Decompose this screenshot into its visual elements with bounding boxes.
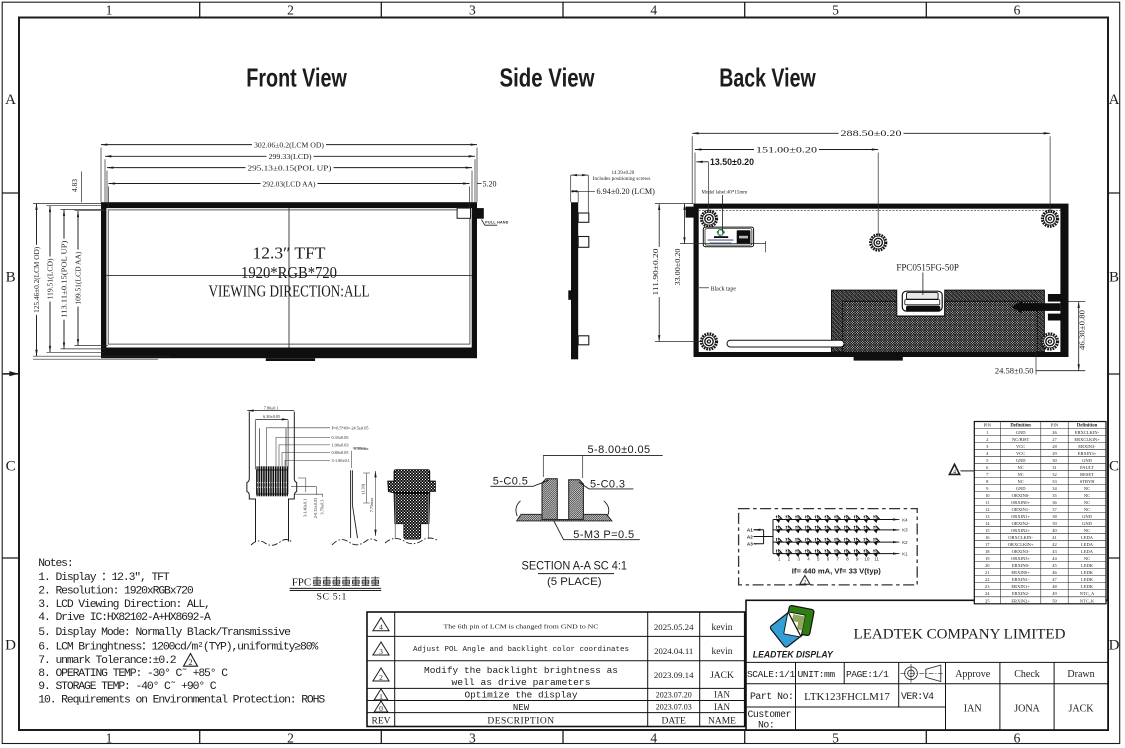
- svg-text:SECTION A-A SC 4:1: SECTION A-A SC 4:1: [522, 561, 628, 573]
- svg-text:Drawn: Drawn: [1067, 669, 1094, 680]
- svg-text:2: 2: [287, 730, 294, 745]
- svg-text:31: 31: [1052, 465, 1057, 470]
- svg-text:B: B: [6, 270, 16, 286]
- svg-text:1: 1: [986, 430, 988, 435]
- svg-text:A3: A3: [747, 542, 753, 547]
- svg-text:LTK123FHCLM17: LTK123FHCLM17: [804, 691, 890, 703]
- svg-text:NC: NC: [1017, 465, 1023, 470]
- svg-text:3: 3: [469, 730, 476, 745]
- svg-text:20: 20: [985, 563, 990, 568]
- svg-text:21: 21: [985, 570, 990, 575]
- svg-text:ERXIN0-: ERXIN0-: [1012, 563, 1030, 568]
- svg-text:6. LCM Bringhtness：1200cd/m²(T: 6. LCM Bringhtness：1200cd/m²(TYP),unifor…: [38, 642, 318, 654]
- svg-text:19: 19: [985, 556, 990, 561]
- svg-text:292.03(LCD AA): 292.03(LCD AA): [263, 179, 316, 188]
- svg-text:0.80±0.05: 0.80±0.05: [332, 450, 349, 455]
- svg-text:5: 5: [832, 730, 839, 745]
- svg-text:LEDK: LEDK: [1081, 584, 1094, 589]
- svg-text:6.30±0.05: 6.30±0.05: [263, 414, 280, 419]
- svg-text:(1.30): (1.30): [360, 483, 365, 494]
- svg-text:GND: GND: [1082, 458, 1092, 463]
- svg-text:D: D: [1109, 638, 1120, 654]
- svg-text:(5 PLACE): (5 PLACE): [547, 576, 602, 588]
- svg-text:2-0.35±0.03: 2-0.35±0.03: [313, 498, 318, 518]
- svg-text:30: 30: [1052, 458, 1057, 463]
- svg-text:5: 5: [832, 2, 839, 17]
- svg-text:2: 2: [188, 657, 192, 667]
- svg-text:15: 15: [985, 528, 990, 533]
- svg-text:2024.04.11: 2024.04.11: [654, 646, 693, 656]
- svg-text:Notes:: Notes:: [38, 558, 72, 570]
- svg-text:NC: NC: [1017, 479, 1023, 484]
- svg-text:ERXIN3-: ERXIN3-: [1078, 444, 1096, 449]
- svg-text:GND: GND: [1016, 486, 1026, 491]
- svg-text:32: 32: [1052, 472, 1057, 477]
- svg-text:NC: NC: [1084, 507, 1090, 512]
- svg-text:FPC: FPC: [292, 577, 312, 589]
- svg-text:JONA: JONA: [1014, 704, 1040, 715]
- svg-text:well as drive parameters: well as drive parameters: [452, 678, 591, 688]
- svg-text:A: A: [1109, 92, 1120, 108]
- svg-text:6: 6: [1014, 730, 1021, 745]
- svg-text:43: 43: [1052, 549, 1057, 554]
- svg-text:2023.09.14: 2023.09.14: [654, 670, 694, 680]
- svg-text:NC: NC: [1084, 556, 1090, 561]
- svg-text:GND: GND: [1082, 514, 1092, 519]
- svg-text:NC: NC: [1084, 528, 1090, 533]
- svg-text:ORXIN3-: ORXIN3-: [1012, 549, 1030, 554]
- svg-text:ERXCLKIN-: ERXCLKIN-: [1075, 430, 1100, 435]
- svg-text:45: 45: [1052, 563, 1057, 568]
- svg-text:9. STORAGE TEMP: -40° C˜ +90°: 9. STORAGE TEMP: -40° C˜ +90° C: [38, 681, 216, 693]
- svg-text:41: 41: [1052, 535, 1057, 540]
- svg-text:C: C: [6, 458, 16, 474]
- svg-text:302.06±0.2(LCM OD): 302.06±0.2(LCM OD): [254, 141, 324, 150]
- svg-text:0.35±0.05: 0.35±0.05: [332, 435, 349, 440]
- svg-text:ERXIN0+: ERXIN0+: [1011, 570, 1030, 575]
- svg-text:1: 1: [379, 692, 383, 701]
- svg-text:VCC: VCC: [1016, 451, 1025, 456]
- svg-text:PIN: PIN: [984, 423, 992, 428]
- svg-text:11: 11: [985, 500, 989, 505]
- svg-text:VIEWING DIRECTION:ALL: VIEWING DIRECTION:ALL: [209, 281, 370, 300]
- svg-text:2: 2: [986, 437, 988, 442]
- svg-text:NAME: NAME: [708, 716, 736, 726]
- svg-text:A: A: [5, 92, 16, 108]
- svg-text:A1: A1: [747, 528, 753, 533]
- svg-text:4. Drive IC:HX82102-A+HX8692-A: 4. Drive IC:HX82102-A+HX8692-A: [38, 612, 211, 624]
- svg-text:1.00±0.03: 1.00±0.03: [332, 443, 349, 448]
- svg-text:K1: K1: [902, 551, 908, 556]
- svg-text:299.33(LCD): 299.33(LCD): [269, 152, 312, 161]
- svg-text:295.13±0.15(POL UP): 295.13±0.15(POL UP): [248, 164, 333, 173]
- svg-text:28: 28: [1052, 444, 1057, 449]
- svg-text:ERXIN3+: ERXIN3+: [1078, 451, 1097, 456]
- svg-text:IAN: IAN: [714, 702, 730, 712]
- svg-text:SCALE:1/1: SCALE:1/1: [747, 669, 795, 680]
- svg-text:NC: NC: [1017, 472, 1023, 477]
- svg-text:Adjust POL Angle and backlight: Adjust POL Angle and backlight color coo…: [413, 646, 629, 654]
- svg-text:LEDK: LEDK: [1081, 563, 1094, 568]
- svg-text:3-1.00±0.1: 3-1.00±0.1: [332, 458, 350, 463]
- svg-text:Side View: Side View: [500, 63, 596, 93]
- svg-text:10: 10: [985, 493, 990, 498]
- svg-text:17: 17: [985, 542, 990, 547]
- svg-text:40: 40: [1052, 528, 1057, 533]
- svg-text:5-8.00±0.05: 5-8.00±0.05: [588, 444, 651, 456]
- svg-text:8. OPERATING TEMP: -30° C˜ +85: 8. OPERATING TEMP: -30° C˜ +85° C: [38, 668, 228, 680]
- svg-text:4.83: 4.83: [70, 179, 79, 192]
- svg-text:4: 4: [379, 623, 383, 632]
- svg-text:REV: REV: [372, 716, 391, 726]
- svg-text:13.50±0.20: 13.50±0.20: [710, 157, 754, 167]
- svg-text:ORXIN3+: ORXIN3+: [1011, 556, 1030, 561]
- svg-text:33.00±0.20: 33.00±0.20: [673, 248, 682, 285]
- svg-text:2. Resolution: 1920xRGBx720: 2. Resolution: 1920xRGBx720: [38, 586, 194, 598]
- svg-text:1: 1: [106, 730, 113, 745]
- svg-text:35: 35: [1052, 493, 1057, 498]
- svg-text:ORXIN0-: ORXIN0-: [1012, 493, 1030, 498]
- svg-text:ERXIN2+: ERXIN2+: [1011, 598, 1030, 603]
- svg-text:24.58±0.50: 24.58±0.50: [995, 366, 1034, 376]
- svg-text:C: C: [1109, 458, 1119, 474]
- svg-text:33: 33: [1052, 479, 1057, 484]
- svg-text:7. unmark Tolerance:±0.2: 7. unmark Tolerance:±0.2: [38, 655, 176, 667]
- svg-text:GND: GND: [1082, 521, 1092, 526]
- svg-text:14: 14: [985, 521, 990, 526]
- svg-text:27: 27: [1052, 437, 1057, 442]
- svg-text:5. Display Mode: Normally Blac: 5. Display Mode: Normally Black/Transmis…: [38, 627, 291, 639]
- svg-text:GND: GND: [1016, 430, 1026, 435]
- svg-text:38: 38: [1052, 514, 1057, 519]
- svg-text:2025.05.24: 2025.05.24: [654, 622, 694, 632]
- svg-text:23: 23: [985, 584, 990, 589]
- svg-text:B: B: [1109, 270, 1119, 286]
- svg-text:Definition: Definition: [1077, 424, 1098, 429]
- svg-text:Optimize the display: Optimize the display: [465, 691, 579, 701]
- svg-text:LEDA: LEDA: [1081, 549, 1094, 554]
- svg-text:NC/BIST: NC/BIST: [1012, 437, 1030, 442]
- svg-text:5-M3 P=0.5: 5-M3 P=0.5: [573, 529, 634, 541]
- svg-text:47: 47: [1052, 577, 1057, 582]
- svg-text:NTC_A: NTC_A: [1080, 591, 1095, 596]
- svg-text:ORXIN2-: ORXIN2-: [1012, 521, 1030, 526]
- svg-text:STBYB: STBYB: [1080, 479, 1095, 484]
- svg-text:0: 0: [379, 704, 383, 713]
- svg-text:5.20: 5.20: [483, 179, 497, 188]
- svg-text:ERXCLKIN+: ERXCLKIN+: [1074, 437, 1100, 442]
- svg-text:NC: NC: [1084, 500, 1090, 505]
- svg-text:10: 10: [865, 557, 870, 562]
- svg-text:JACK: JACK: [710, 671, 734, 681]
- svg-text:2: 2: [379, 673, 383, 682]
- svg-text:VCC: VCC: [1016, 444, 1025, 449]
- svg-text:44: 44: [1052, 556, 1057, 561]
- svg-text:VER:V4: VER:V4: [901, 691, 934, 702]
- svg-text:Includes positioning screws: Includes positioning screws: [593, 176, 651, 182]
- svg-text:151.00±0.20: 151.00±0.20: [756, 144, 817, 154]
- svg-text:Approve: Approve: [955, 669, 991, 680]
- svg-text:FPC0515FG-50P: FPC0515FG-50P: [896, 263, 959, 273]
- svg-text:6.94±0.20 (LCM): 6.94±0.20 (LCM): [597, 187, 656, 196]
- svg-text:DESCRIPTION: DESCRIPTION: [487, 716, 554, 726]
- svg-text:LEADTEK DISPLAY: LEADTEK DISPLAY: [753, 650, 834, 661]
- svg-text:6: 6: [1014, 2, 1021, 17]
- svg-text:50: 50: [1052, 598, 1057, 603]
- svg-text:K3: K3: [902, 528, 908, 533]
- svg-text:ORXIN2+: ORXIN2+: [1011, 528, 1030, 533]
- svg-text:5-C0.5: 5-C0.5: [493, 476, 528, 488]
- svg-text:39: 39: [1052, 521, 1057, 526]
- svg-text:0.30max: 0.30max: [354, 446, 369, 451]
- svg-text:288.50±0.20: 288.50±0.20: [841, 128, 902, 138]
- svg-text:JACK: JACK: [1068, 704, 1094, 715]
- svg-text:36: 36: [1052, 500, 1057, 505]
- svg-text:11: 11: [874, 557, 879, 562]
- svg-text:12: 12: [985, 507, 990, 512]
- svg-text:46.30±0.80: 46.30±0.80: [1077, 310, 1086, 350]
- svg-text:42: 42: [1052, 542, 1057, 547]
- svg-text:125.46±0.2(LCM OD): 125.46±0.2(LCM OD): [32, 246, 41, 312]
- svg-text:IAN: IAN: [964, 704, 982, 715]
- svg-text:NC: NC: [1084, 493, 1090, 498]
- svg-text:37: 37: [1052, 507, 1057, 512]
- svg-text:1: 1: [106, 2, 113, 17]
- svg-text:LEADTEK COMPANY LIMITED: LEADTEK COMPANY LIMITED: [854, 627, 1066, 643]
- svg-text:4: 4: [650, 2, 657, 17]
- svg-text:ERXIN1+: ERXIN1+: [1011, 584, 1030, 589]
- svg-text:Modify the backlight brightnes: Modify the backlight brightness as: [424, 666, 618, 676]
- svg-text:ORXIN0+: ORXIN0+: [1011, 500, 1030, 505]
- svg-text:Definition: Definition: [1010, 424, 1031, 429]
- svg-text:GND: GND: [1016, 458, 1026, 463]
- svg-text:DATE: DATE: [662, 716, 686, 726]
- svg-text:A2: A2: [747, 534, 753, 539]
- svg-text:113.11±0.15(POL UP): 113.11±0.15(POL UP): [60, 240, 69, 317]
- svg-text:ORXIN1-: ORXIN1-: [1012, 507, 1030, 512]
- svg-text:ERXIN2-: ERXIN2-: [1012, 591, 1030, 596]
- svg-text:Customer: Customer: [748, 709, 791, 720]
- svg-text:3. LCD Viewing Direction: ALL,: 3. LCD Viewing Direction: ALL,: [38, 599, 209, 611]
- svg-text:10. Requirements on Environmen: 10. Requirements on Environmental Protec…: [38, 695, 325, 707]
- svg-text:3: 3: [469, 2, 476, 17]
- svg-text:Check: Check: [1014, 669, 1040, 680]
- svg-text:Front View: Front View: [246, 63, 347, 93]
- svg-text:109.51(LCD AA): 109.51(LCD AA): [74, 251, 83, 304]
- svg-text:FAULT: FAULT: [1080, 465, 1094, 470]
- svg-text:NC: NC: [1084, 486, 1090, 491]
- svg-text:K2: K2: [902, 540, 908, 545]
- svg-text:1. Display ：12.3″, TFT: 1. Display ：12.3″, TFT: [38, 572, 170, 584]
- svg-text:4: 4: [953, 470, 956, 476]
- svg-text:16: 16: [985, 535, 990, 540]
- svg-text:119.51(LCD): 119.51(LCD): [46, 258, 55, 299]
- svg-text:K4: K4: [902, 517, 908, 522]
- svg-text:ORXCLKIN-: ORXCLKIN-: [1008, 535, 1033, 540]
- svg-text:LEDK: LEDK: [1081, 570, 1094, 575]
- svg-text:49: 49: [1052, 591, 1057, 596]
- svg-text:ORXIN1+: ORXIN1+: [1011, 514, 1030, 519]
- svg-text:PIN: PIN: [1051, 423, 1059, 428]
- svg-text:111.90±0.20: 111.90±0.20: [651, 248, 660, 295]
- svg-text:3.70±0.3: 3.70±0.3: [319, 500, 324, 515]
- svg-text:7.75max: 7.75max: [369, 497, 374, 512]
- svg-text:4: 4: [650, 730, 657, 745]
- svg-text:Back View: Back View: [719, 63, 816, 93]
- svg-text:2: 2: [804, 580, 807, 586]
- svg-text:ORXCLKIN+: ORXCLKIN+: [1008, 542, 1034, 547]
- svg-text:5-C0.3: 5-C0.3: [590, 478, 625, 490]
- svg-text:LEDA: LEDA: [1081, 542, 1094, 547]
- svg-text:3-1.40±0.1: 3-1.40±0.1: [303, 499, 308, 517]
- svg-text:kevin: kevin: [711, 623, 732, 633]
- svg-text:LEDA: LEDA: [1081, 535, 1094, 540]
- svg-text:The 6th pin of LCM is changed: The 6th pin of LCM is changed from GND t…: [444, 623, 599, 630]
- svg-text:18: 18: [985, 549, 990, 554]
- svg-text:46: 46: [1052, 570, 1057, 575]
- svg-text:1920*RGB*720: 1920*RGB*720: [241, 263, 337, 282]
- svg-text:22: 22: [985, 577, 990, 582]
- svg-text:2: 2: [287, 2, 294, 17]
- svg-text:ERXIN1-: ERXIN1-: [1012, 577, 1030, 582]
- svg-text:29: 29: [1052, 451, 1057, 456]
- svg-text:If= 440 mA, Vf= 33 V(typ): If= 440 mA, Vf= 33 V(typ): [792, 567, 881, 576]
- svg-text:2023.07.20: 2023.07.20: [656, 690, 692, 699]
- svg-text:7.80±0.1: 7.80±0.1: [264, 405, 279, 410]
- svg-text:No:: No:: [758, 720, 774, 731]
- svg-text:D: D: [5, 638, 16, 654]
- svg-text:48: 48: [1052, 584, 1057, 589]
- svg-text:P=0.5*49=-24.5±0.05: P=0.5*49=-24.5±0.05: [332, 425, 369, 430]
- svg-text:UNIT:mm: UNIT:mm: [798, 669, 836, 680]
- svg-text:NEW: NEW: [513, 703, 530, 713]
- svg-text:kevin: kevin: [711, 647, 732, 657]
- svg-text:3: 3: [379, 647, 383, 656]
- svg-text:34: 34: [1052, 486, 1057, 491]
- svg-text:Part No:: Part No:: [750, 691, 793, 702]
- svg-text:IAN: IAN: [714, 690, 730, 700]
- svg-text:12.3″ TFT: 12.3″ TFT: [253, 244, 326, 263]
- svg-text:25: 25: [985, 598, 990, 603]
- svg-text:26: 26: [1052, 430, 1057, 435]
- svg-text:2023.07.03: 2023.07.03: [656, 703, 692, 712]
- svg-text:Black tape: Black tape: [711, 286, 737, 292]
- svg-text:PULL HAND: PULL HAND: [485, 221, 509, 225]
- svg-text:13: 13: [985, 514, 990, 519]
- svg-text:SC 5:1: SC 5:1: [317, 592, 348, 603]
- svg-text:RESET: RESET: [1080, 472, 1094, 477]
- svg-text:NTC_K: NTC_K: [1080, 598, 1095, 603]
- svg-text:PAGE:1/1: PAGE:1/1: [846, 669, 889, 680]
- svg-text:24: 24: [985, 591, 990, 596]
- svg-text:LEDK: LEDK: [1081, 577, 1094, 582]
